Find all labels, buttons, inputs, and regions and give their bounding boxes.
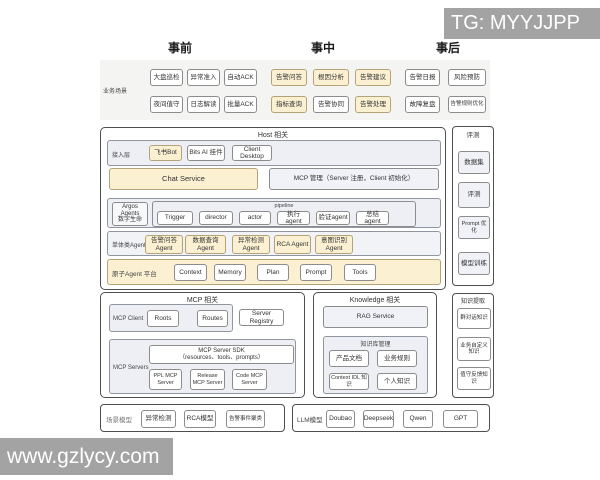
scene-models-label: 场景模型 <box>106 405 132 433</box>
scenario-box: 告警建议 <box>355 69 391 86</box>
evaluation-panel: 评测 数据集 评测 Prompt 优化 模型训练 <box>452 126 494 286</box>
scene-model-box: 异常检测 <box>141 410 176 428</box>
phase-post-label: 事后 <box>418 39 478 56</box>
llm-box: GPT <box>443 410 478 428</box>
pipeline-box: 总结agent <box>356 211 389 225</box>
scenario-box: 告警规则优化 <box>448 96 486 113</box>
routes-box: Routes <box>197 310 228 327</box>
mcp-server-box: Code MCP Server <box>232 369 267 390</box>
watermark-top: TG: MYYJJPP <box>444 8 600 39</box>
argos-agents-label-line2: 数字生命 <box>118 217 142 224</box>
kb-box: Context IDL 知识 <box>329 373 369 390</box>
atomic-agent-platform-row: 原子Agent 平台 Context Memory Plan Prompt To… <box>107 259 441 285</box>
argos-agents-row: Argos Agents 数字生命 pipeline Trigger direc… <box>107 198 441 228</box>
extraction-box: 业务自定义知识 <box>457 337 491 361</box>
knowledge-base-label: 知识库管理 <box>324 339 427 348</box>
eval-box: Prompt 优化 <box>458 216 490 239</box>
pipeline-box: Trigger <box>157 211 193 225</box>
extraction-box: 值守反馈知识 <box>457 367 491 390</box>
agent-box: RCA Agent <box>274 235 311 254</box>
atomic-box: Plan <box>257 264 289 281</box>
agent-box: 告警问答Agent <box>145 235 183 254</box>
mcp-client-strip: MCP Client Roots Routes <box>109 304 233 332</box>
mcp-server-sdk-line1: MCP Server SDK <box>198 348 245 355</box>
mcp-panel: MCP 相关 MCP Client Roots Routes Server Re… <box>100 292 305 398</box>
llm-box: Doubao <box>326 410 355 428</box>
extraction-panel-title: 知识提取 <box>453 296 493 305</box>
chat-service-box: Chat Service <box>109 168 258 190</box>
mcp-server-box: Release MCP Server <box>190 369 225 390</box>
mcp-server-sdk-line2: （resources、tools、prompts） <box>179 355 264 362</box>
llm-box: Deepseek <box>363 410 394 428</box>
llm-box: Qwen <box>403 410 433 428</box>
pipeline-label: pipeline <box>153 203 415 209</box>
eval-box: 数据集 <box>458 151 490 174</box>
argos-agents-label-box: Argos Agents 数字生命 <box>112 202 148 226</box>
roots-box: Roots <box>147 310 179 327</box>
kb-box: 个人知识 <box>377 373 417 390</box>
scenario-box: 异常准入 <box>187 69 220 86</box>
kb-box: 业务规则 <box>377 350 417 367</box>
scenario-box: 根因分析 <box>313 69 349 86</box>
scenario-box: 告警处理 <box>355 96 391 113</box>
scenario-box: 批量ACK <box>224 96 257 113</box>
scenario-box: 夜间值守 <box>150 96 183 113</box>
pipeline-box: director <box>199 211 233 225</box>
mcp-servers-group: MCP Servers MCP Server SDK （resources、to… <box>109 339 296 394</box>
knowledge-base-group: 知识库管理 产品文档 业务规则 Context IDL 知识 个人知识 <box>323 336 428 394</box>
atomic-box: Tools <box>344 264 376 281</box>
watermark-bottom: www.gzlycy.com <box>0 438 173 475</box>
phase-during-label: 事中 <box>293 39 353 56</box>
single-agents-label: 单体类Agents <box>112 232 149 257</box>
scenario-box: 大盘巡检 <box>150 69 183 86</box>
architecture-diagram: { "watermark": {"top": "TG: MYYJJPP", "b… <box>0 0 600 480</box>
eval-box: 模型训练 <box>458 252 490 275</box>
extraction-box: 群对话知识 <box>457 308 491 329</box>
agent-box: 异常检测Agent <box>232 235 270 254</box>
argos-agents-label-line1: Argos Agents <box>114 204 146 218</box>
scenario-box: 故障复盘 <box>405 96 440 113</box>
agent-box: 数据查询Agent <box>185 235 226 254</box>
scenario-box: 告警问答 <box>271 69 307 86</box>
rag-service-box: RAG Service <box>323 306 428 328</box>
scene-model-box: RCA模型 <box>184 410 216 428</box>
phase-pre-label: 事前 <box>150 39 210 56</box>
server-registry-box: Server Registry <box>239 309 284 326</box>
pipeline-group: pipeline Trigger director actor 执行agent … <box>152 201 416 227</box>
mcp-server-box: PPL MCP Server <box>149 369 182 390</box>
extraction-panel: 知识提取 群对话知识 业务自定义知识 值守反馈知识 <box>452 293 494 398</box>
mcp-server-sdk-box: MCP Server SDK （resources、tools、prompts） <box>149 345 294 364</box>
client-desktop-box: Client Desktop <box>232 145 272 161</box>
host-panel: Host 相关 接入层 飞书Bot Bits AI 挂件 Client Desk… <box>100 127 446 290</box>
bits-ai-widget-box: Bits AI 挂件 <box>187 145 225 161</box>
business-scenarios-label: 业务场景 <box>103 60 127 120</box>
access-layer-label: 接入层 <box>112 141 130 167</box>
evaluation-panel-title: 评测 <box>453 129 493 139</box>
scenario-box: 日志解读 <box>187 96 220 113</box>
host-panel-title: Host 相关 <box>101 130 445 140</box>
atomic-box: Memory <box>214 264 246 281</box>
pipeline-box: actor <box>239 211 271 225</box>
llm-models-panel: LLM模型 Doubao Deepseek Qwen GPT <box>292 404 490 432</box>
scenario-box: 告警协同 <box>313 96 349 113</box>
scenario-box: 风险预防 <box>448 69 486 86</box>
pipeline-box: 执行agent <box>277 211 310 225</box>
knowledge-panel: Knowledge 相关 RAG Service 知识库管理 产品文档 业务规则… <box>313 292 437 398</box>
access-layer-strip: 接入层 飞书Bot Bits AI 挂件 Client Desktop <box>107 140 441 166</box>
pipeline-box: 验证agent <box>316 211 350 225</box>
scene-model-box: 告警事件聚类 <box>226 410 265 428</box>
llm-models-label: LLM模型 <box>297 405 323 433</box>
scene-models-panel: 场景模型 异常检测 RCA模型 告警事件聚类 <box>100 404 285 432</box>
feishu-bot-box: 飞书Bot <box>149 145 182 161</box>
single-agents-row: 单体类Agents 告警问答Agent 数据查询Agent 异常检测Agent … <box>107 231 441 256</box>
mcp-servers-label: MCP Servers <box>113 340 149 395</box>
atomic-box: Context <box>174 264 207 281</box>
business-scenarios-strip: 业务场景 大盘巡检 异常准入 自动ACK 夜间值守 日志解读 批量ACK 告警问… <box>100 60 490 120</box>
knowledge-panel-title: Knowledge 相关 <box>314 295 436 305</box>
atomic-agent-platform-label: 原子Agent 平台 <box>112 260 157 286</box>
scenario-box: 告警日报 <box>405 69 440 86</box>
scenario-box: 自动ACK <box>224 69 257 86</box>
mcp-client-label: MCP Client <box>113 305 143 333</box>
atomic-box: Prompt <box>300 264 332 281</box>
eval-box: 评测 <box>458 182 490 208</box>
scenario-box: 指标查询 <box>271 96 307 113</box>
mcp-manage-box: MCP 管理（Server 注册，Client 初始化） <box>269 168 439 190</box>
agent-box: 意图识别Agent <box>315 235 353 254</box>
kb-box: 产品文档 <box>329 350 369 367</box>
